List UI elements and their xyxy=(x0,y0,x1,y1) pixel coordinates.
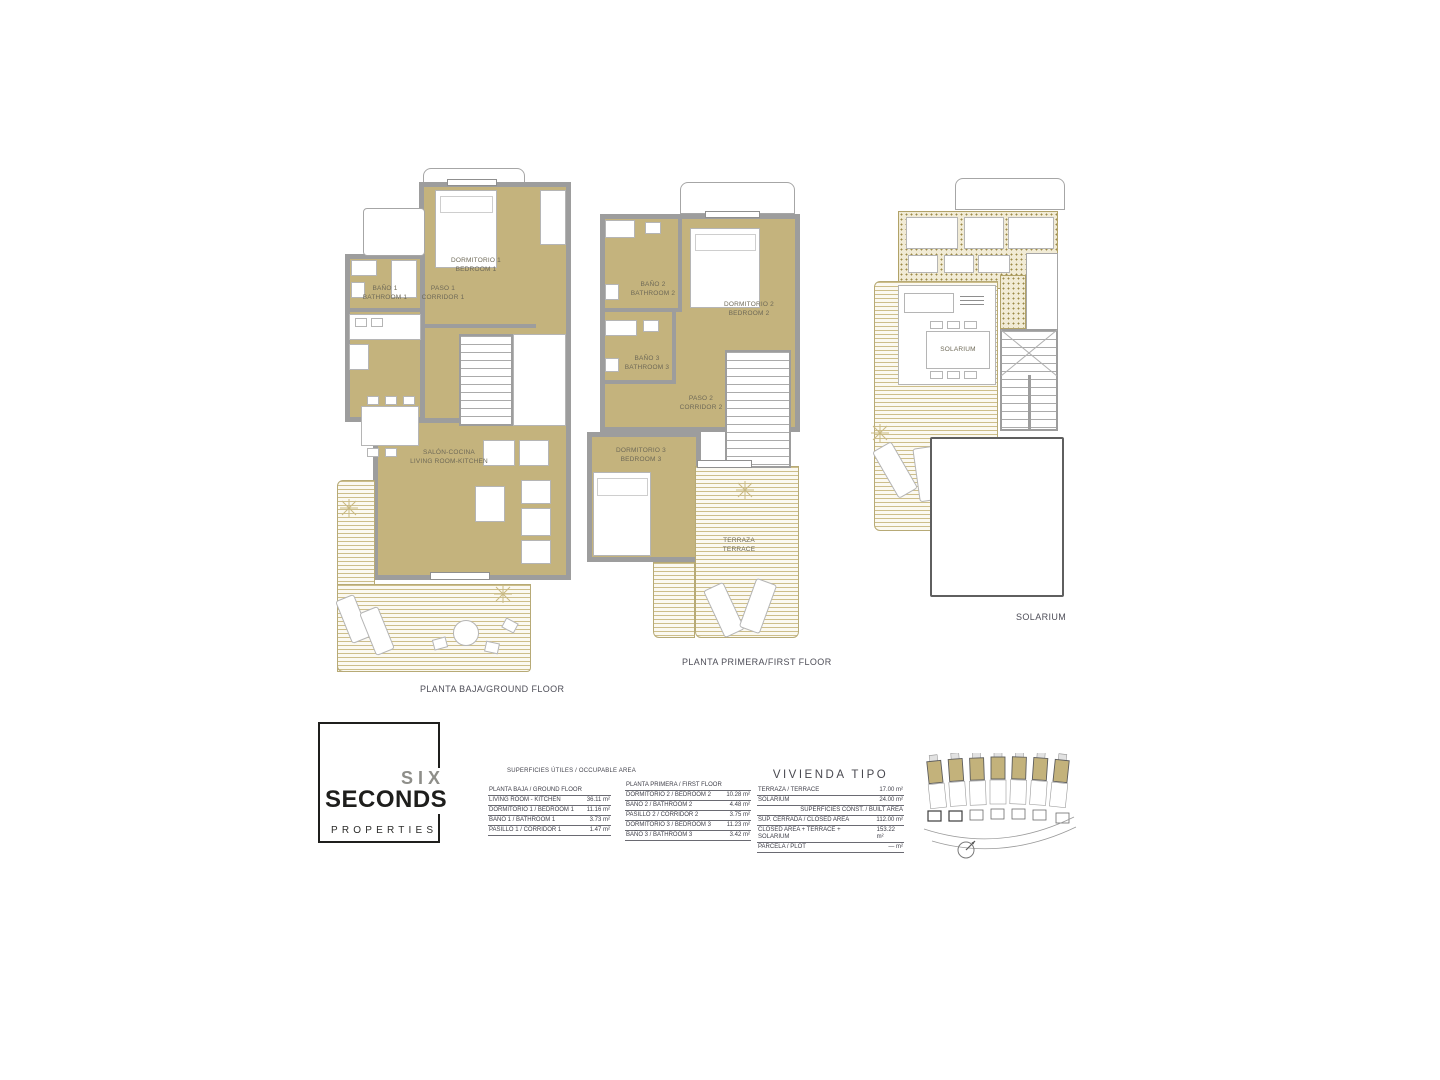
sliding-door xyxy=(430,572,490,580)
front-yard xyxy=(363,208,425,256)
table-row: CLOSED AREA + TERRACE + SOLARIUM153.22 m… xyxy=(757,826,904,843)
sink-icon xyxy=(371,318,383,327)
grill-lines xyxy=(960,296,984,297)
roof-panel xyxy=(944,255,974,273)
table-row: BAÑO 2 / BATHROOM 24.48 m² xyxy=(625,801,751,811)
shower-icon xyxy=(605,220,635,238)
room-label-bath3: BAÑO 3BATHROOM 3 xyxy=(607,354,687,372)
palm-icon xyxy=(339,498,359,518)
logo-properties: PROPERTIES xyxy=(331,825,437,836)
site-houses xyxy=(925,753,1071,809)
room-label-corridor1: PASO 1CORRIDOR 1 xyxy=(413,284,473,302)
room-label-corridor2: PASO 2CORRIDOR 2 xyxy=(661,394,741,412)
table-row: PASILLO 2 / CORRIDOR 23.75 m² xyxy=(625,811,751,821)
gravel-roof-area xyxy=(1000,275,1026,329)
chair-icon xyxy=(964,371,977,379)
roof-panel xyxy=(908,255,938,273)
bed-icon xyxy=(690,228,760,308)
window xyxy=(705,211,760,218)
pillow-icon xyxy=(597,478,647,496)
staircase xyxy=(459,334,513,426)
table-row: SOLARIUM24.00 m² xyxy=(757,796,904,806)
bed-icon xyxy=(593,472,651,556)
table-title: PLANTA PRIMERA / FIRST FLOOR xyxy=(625,781,751,791)
roof-terrace-upper xyxy=(1026,253,1058,331)
site-house xyxy=(968,753,986,805)
chair-icon xyxy=(947,321,960,329)
stair-rail xyxy=(1028,375,1031,429)
plan-caption-first: PLANTA PRIMERA/FIRST FLOOR xyxy=(682,657,832,667)
chair-icon xyxy=(385,396,397,405)
first-floor-table: PLANTA PRIMERA / FIRST FLOOR DORMITORIO … xyxy=(625,781,751,841)
armchair-icon xyxy=(521,480,551,504)
site-house xyxy=(925,754,946,808)
table-row: TERRAZA / TERRACE17.00 m² xyxy=(757,786,904,796)
chair-icon xyxy=(947,371,960,379)
open-roof-terrace xyxy=(930,437,1064,597)
pillow-icon xyxy=(440,196,494,213)
table-row: DORMITORIO 1 / BEDROOM 111.16 m² xyxy=(488,806,611,816)
site-house xyxy=(947,753,967,806)
partition xyxy=(600,380,672,384)
room-label-solarium: SOLARIUM xyxy=(926,345,990,354)
site-house xyxy=(1030,753,1050,805)
chair-icon xyxy=(930,321,943,329)
ground-floor-table: PLANTA BAJA / GROUND FLOOR LIVING ROOM -… xyxy=(488,786,611,836)
round-table-icon xyxy=(453,620,479,646)
vivienda-tipo-table: TERRAZA / TERRACE17.00 m² SOLARIUM24.00 … xyxy=(757,786,904,853)
room-label-terrace: TERRAZATERRACE xyxy=(697,536,781,554)
coffee-table-icon xyxy=(475,486,505,522)
table-row: LIVING ROOM - KITCHEN36.11 m² xyxy=(488,796,611,806)
room-label-bath1: BAÑO 1BATHROOM 1 xyxy=(349,284,421,302)
partition xyxy=(600,308,678,312)
plan-caption-solarium: SOLARIUM xyxy=(1016,612,1066,622)
grill-lines xyxy=(960,300,984,301)
six-seconds-logo: SIX SECONDS PROPERTIES xyxy=(318,722,440,843)
palm-icon xyxy=(493,584,513,604)
sink-icon xyxy=(643,320,659,332)
roof-outline xyxy=(955,178,1065,210)
window xyxy=(447,179,497,186)
roof-panel xyxy=(978,255,1010,273)
fridge-icon xyxy=(349,344,369,370)
armchair-icon xyxy=(521,540,551,564)
site-garages xyxy=(928,809,1069,823)
sofa-icon xyxy=(519,440,549,466)
grill-lines xyxy=(960,304,984,305)
table-row: PASILLO 1 / CORRIDOR 11.47 m² xyxy=(488,826,611,836)
table-row: DORMITORIO 3 / BEDROOM 311.23 m² xyxy=(625,821,751,831)
site-plan-illustration xyxy=(922,753,1080,865)
roof-panel xyxy=(906,217,958,249)
pillow-icon xyxy=(695,234,755,252)
stair-landing xyxy=(513,334,566,426)
outdoor-kitchen-icon xyxy=(904,293,954,313)
room-label-bedroom1: DORMITORIO 1BEDROOM 1 xyxy=(430,256,522,274)
table-row: DORMITORIO 2 / BEDROOM 210.28 m² xyxy=(625,791,751,801)
site-road xyxy=(924,817,1074,839)
table-subheader: SUPERFICIES CONST. / BUILT AREA xyxy=(757,806,904,816)
dining-table-icon xyxy=(361,406,419,446)
stair-cross xyxy=(1000,329,1058,377)
partition xyxy=(350,308,420,312)
hob-icon xyxy=(355,318,367,327)
table-row: PARCELA / PLOT— m² xyxy=(757,843,904,853)
table-title: PLANTA BAJA / GROUND FLOOR xyxy=(488,786,611,796)
chair-icon xyxy=(367,396,379,405)
site-house xyxy=(1049,753,1070,807)
solarium-plan: SOLARIUM SOLARIUM xyxy=(868,175,1080,630)
brochure-page: DORMITORIO 1BEDROOM 1 BAÑO 1BATHROOM 1 P… xyxy=(0,0,1440,1080)
vivienda-tipo-title: VIVIENDA TIPO xyxy=(757,769,904,781)
ground-floor-plan: DORMITORIO 1BEDROOM 1 BAÑO 1BATHROOM 1 P… xyxy=(335,168,581,698)
sink-icon xyxy=(645,222,661,234)
table-row: SUP. CERRADA / CLOSED AREA112.00 m² xyxy=(757,816,904,826)
room-label-bedroom3: DORMITORIO 3BEDROOM 3 xyxy=(593,446,689,464)
occupable-area-header: SUPERFICIES ÚTILES / OCCUPABLE AREA xyxy=(507,768,636,774)
logo-seconds: SECONDS xyxy=(325,786,452,814)
table-row: BAÑO 1 / BATHROOM 13.73 m² xyxy=(488,816,611,826)
room-label-living: SALÓN-COCINALIVING ROOM-KITCHEN xyxy=(393,448,505,466)
sliding-door xyxy=(697,460,752,468)
terrace-deck xyxy=(653,562,695,638)
sink-icon xyxy=(351,260,377,276)
partition xyxy=(424,324,536,328)
chair-icon xyxy=(930,371,943,379)
palm-icon xyxy=(870,423,890,443)
plan-caption-ground: PLANTA BAJA/GROUND FLOOR xyxy=(420,684,564,694)
room-label-bath2: BAÑO 2BATHROOM 2 xyxy=(610,280,696,298)
chair-icon xyxy=(964,321,977,329)
roof-panel xyxy=(1008,217,1054,249)
chair-icon xyxy=(403,396,415,405)
roof-outline xyxy=(680,182,795,214)
north-arrow-icon xyxy=(958,841,975,858)
first-floor-plan: BAÑO 2BATHROOM 2 DORMITORIO 2BEDROOM 2 B… xyxy=(585,180,807,674)
site-house xyxy=(1010,753,1028,804)
bathtub-icon xyxy=(605,320,637,336)
table-row: BAÑO 3 / BATHROOM 33.42 m² xyxy=(625,831,751,841)
chair-icon xyxy=(367,448,379,457)
room-label-bedroom2: DORMITORIO 2BEDROOM 2 xyxy=(703,300,795,318)
partition xyxy=(672,312,676,384)
palm-icon xyxy=(735,480,755,500)
armchair-icon xyxy=(521,508,551,536)
wardrobe-icon xyxy=(540,190,566,245)
site-house xyxy=(990,753,1006,804)
roof-panel xyxy=(964,217,1004,249)
